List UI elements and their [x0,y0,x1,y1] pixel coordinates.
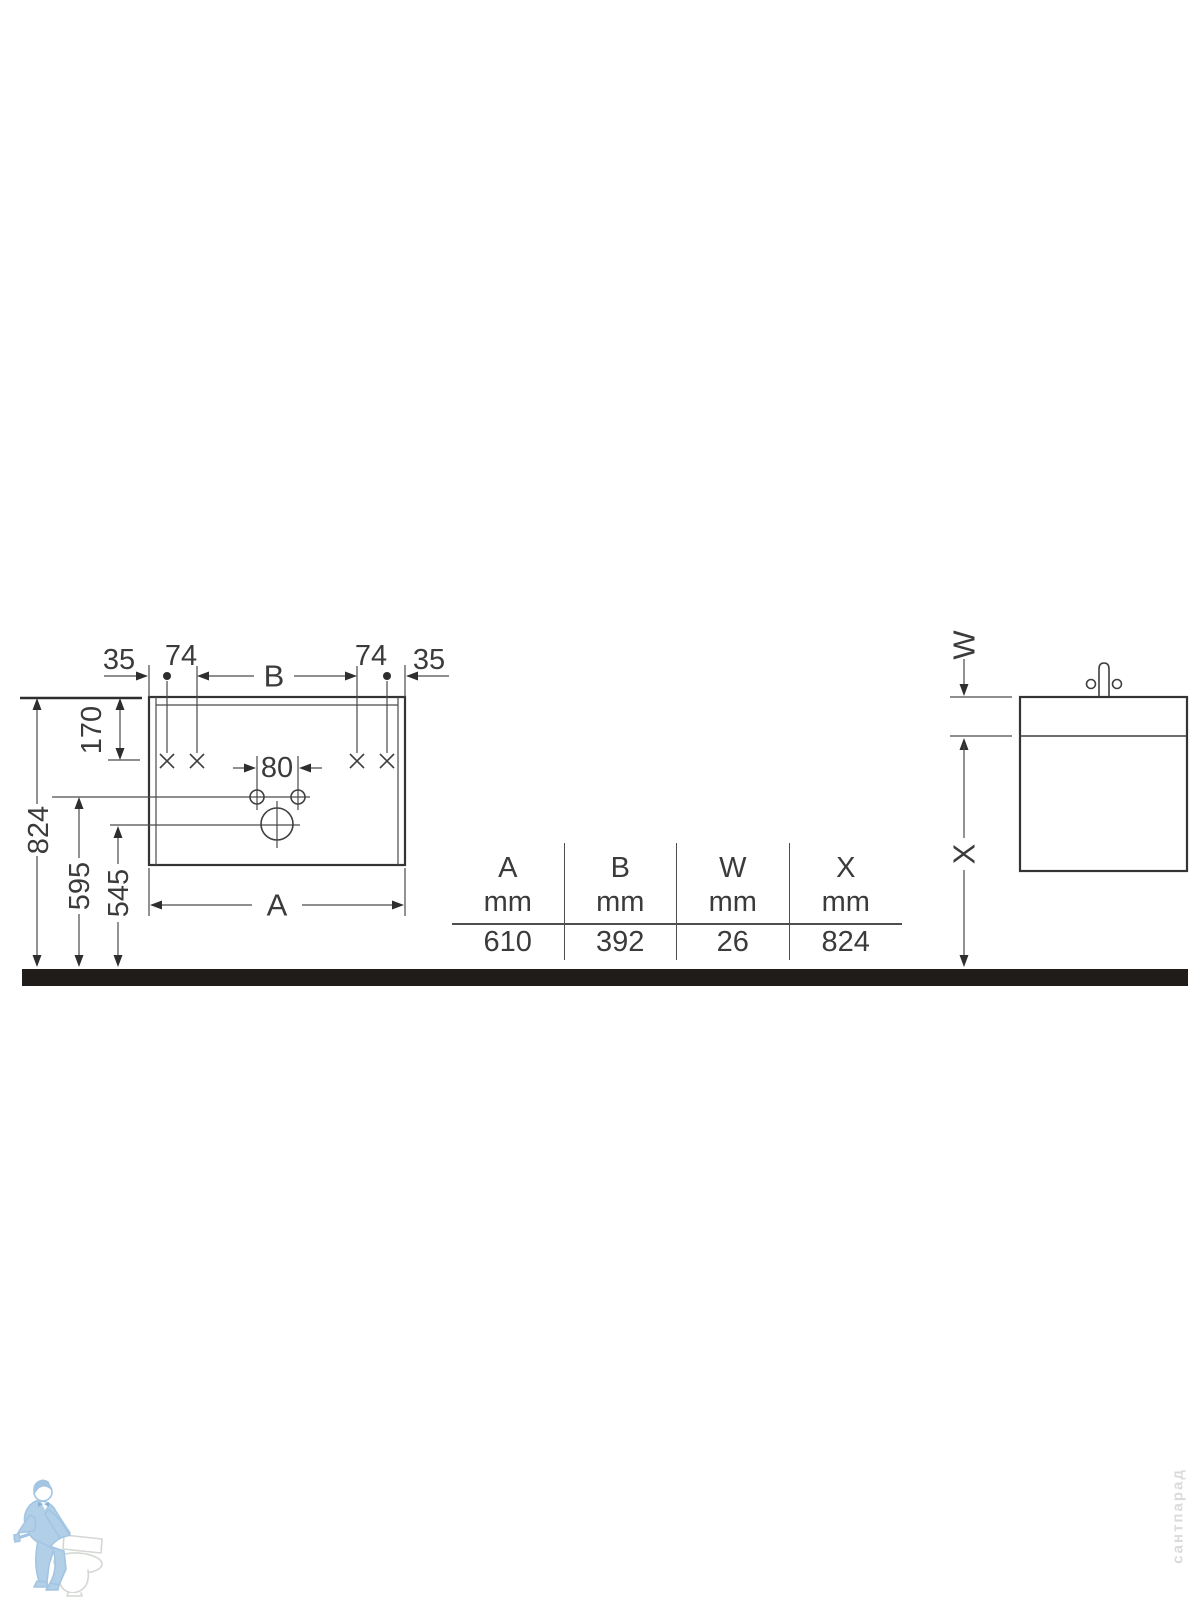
mounting-dot-left [163,672,171,680]
side-view-drawing: W X [947,630,1188,967]
dim-label-top-to-fixing: 170 [76,706,108,754]
spec-table-value-a: 610 [452,925,564,960]
spec-table-unit-a: mm [484,885,532,919]
spec-table-letter-b: B [611,852,630,885]
dim-label-height-drain: 545 [103,869,135,917]
dim-label-underside-height: X [947,843,982,864]
mounting-dot-right [383,672,391,680]
dim-label-height-faucet-holes: 595 [64,862,96,910]
dim-label-offset-left: 35 [103,644,135,676]
spec-table-header-x: X mm [790,843,903,925]
faucet-icon [1087,663,1122,696]
spec-table-column-a: A mm 610 [452,843,565,960]
dim-label-pitch-left: 74 [165,640,197,672]
dim-label-offset-right: 35 [413,644,445,676]
spec-table: A mm 610 B mm 392 W mm 26 X mm 824 [452,843,902,960]
dim-label-height-total: 824 [23,806,55,854]
spec-table-letter-x: X [836,852,855,885]
dim-label-width-total: A [267,888,288,923]
dim-label-width-between-fixings: B [264,659,285,694]
spec-table-unit-w: mm [709,885,757,919]
shop-name-watermark: сантпарад [1170,1468,1187,1564]
front-view-drawing: 35 35 74 74 B [20,640,449,967]
plumber-toilet-logo-watermark [12,1475,122,1597]
spec-table-value-x: 824 [790,925,903,960]
spec-table-letter-a: A [498,852,517,885]
floor-ground-bar [22,969,1188,986]
spec-table-column-x: X mm 824 [790,843,903,960]
vanity-side-outline [1020,697,1187,871]
spec-table-unit-b: mm [596,885,644,919]
spec-table-value-w: 26 [677,925,789,960]
spec-table-header-b: B mm [565,843,677,925]
page: 35 35 74 74 B [0,0,1200,1600]
spec-table-value-b: 392 [565,925,677,960]
dim-label-pitch-right: 74 [355,640,387,672]
spec-table-header-w: W mm [677,843,789,925]
spec-table-letter-w: W [719,852,746,885]
technical-drawing-canvas: 35 35 74 74 B [0,0,1200,1600]
spec-table-header-a: A mm [452,843,564,925]
dim-label-faucet-hole-pitch: 80 [261,752,293,784]
dim-label-counter-thickness: W [947,630,982,660]
spec-table-unit-x: mm [822,885,870,919]
spec-table-column-w: W mm 26 [677,843,790,960]
spec-table-column-b: B mm 392 [565,843,678,960]
